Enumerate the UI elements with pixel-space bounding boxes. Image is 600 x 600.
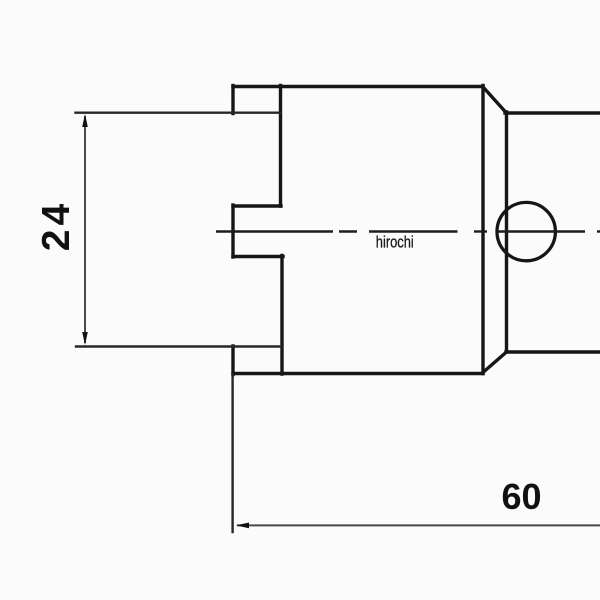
svg-text:60: 60 bbox=[501, 476, 541, 517]
svg-text:hirochi: hirochi bbox=[376, 233, 414, 251]
svg-text:24: 24 bbox=[35, 200, 78, 251]
